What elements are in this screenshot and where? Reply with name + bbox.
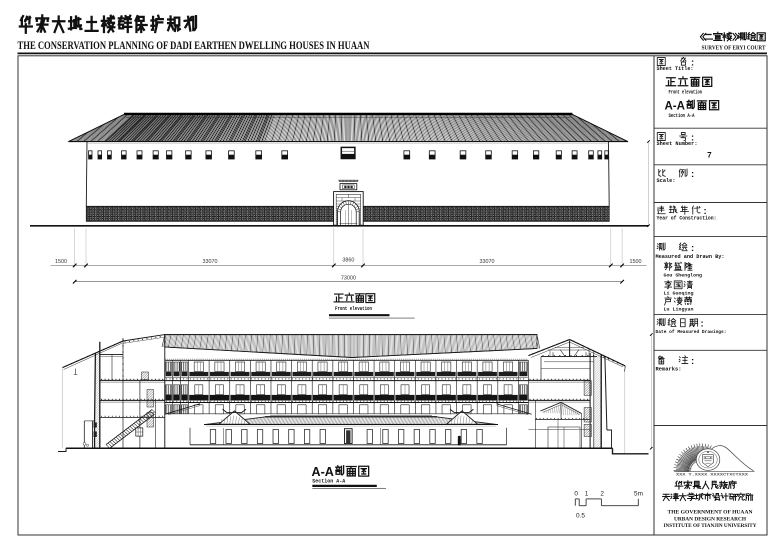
svg-text:Remarks:: Remarks:	[656, 366, 682, 372]
svg-text:33070: 33070	[480, 259, 495, 265]
svg-text:XXX Y.XXXX XXXXCTXCTXXX: XXX Y.XXXX XXXXCTXCTXXX	[676, 472, 748, 476]
svg-text:5m: 5m	[634, 490, 643, 497]
svg-text:Front elevation: Front elevation	[669, 89, 703, 95]
svg-text:1500: 1500	[630, 259, 642, 265]
svg-text:Section A-A: Section A-A	[669, 113, 696, 119]
svg-text:Lu Lingyan: Lu Lingyan	[664, 307, 694, 313]
svg-text:Section A-A: Section A-A	[312, 478, 346, 485]
svg-text:Front elevation: Front elevation	[335, 305, 372, 312]
svg-text:URBAN DESIGN RESEARCH: URBAN DESIGN RESEARCH	[674, 516, 747, 522]
svg-text:Sheet Title:: Sheet Title:	[657, 66, 694, 72]
svg-text:Measured and Drawn By:: Measured and Drawn By:	[656, 254, 725, 260]
svg-text:1: 1	[585, 490, 589, 497]
svg-text:2: 2	[600, 490, 604, 497]
svg-text:7: 7	[707, 152, 712, 161]
svg-text:Gou Shenglong: Gou Shenglong	[664, 273, 703, 279]
svg-text:73000: 73000	[341, 275, 356, 281]
svg-text::: :	[691, 356, 694, 367]
svg-text:Scale:: Scale:	[657, 178, 676, 184]
svg-text::: :	[691, 243, 694, 254]
svg-text:THE CONSERVATION PLANNING OF D: THE CONSERVATION PLANNING OF DADI EARTHE…	[18, 40, 371, 52]
svg-text:SURVEY OF ERYI COURT: SURVEY OF ERYI COURT	[702, 45, 767, 52]
svg-text:Li Guoqing: Li Guoqing	[664, 291, 694, 297]
svg-text:33070: 33070	[203, 259, 218, 265]
svg-text::: :	[701, 319, 704, 330]
svg-text:Year of Construction:: Year of Construction:	[657, 216, 717, 222]
svg-text::: :	[691, 169, 694, 180]
svg-text:INSTITUTE OF TIANJIN UNIVERSIT: INSTITUTE OF TIANJIN UNIVERSITY	[664, 523, 757, 529]
svg-text:Sheet Number:: Sheet Number:	[657, 141, 698, 147]
svg-text:0.5: 0.5	[576, 513, 585, 520]
svg-text:3860: 3860	[342, 258, 354, 264]
svg-text:1500: 1500	[55, 259, 67, 265]
svg-text:A-A: A-A	[665, 101, 685, 113]
svg-text:0: 0	[574, 490, 578, 497]
svg-text:THE GOVERNMENT OF HUAAN: THE GOVERNMENT OF HUAAN	[668, 510, 753, 516]
svg-text:Date of Measured Drawings:: Date of Measured Drawings:	[656, 329, 727, 335]
